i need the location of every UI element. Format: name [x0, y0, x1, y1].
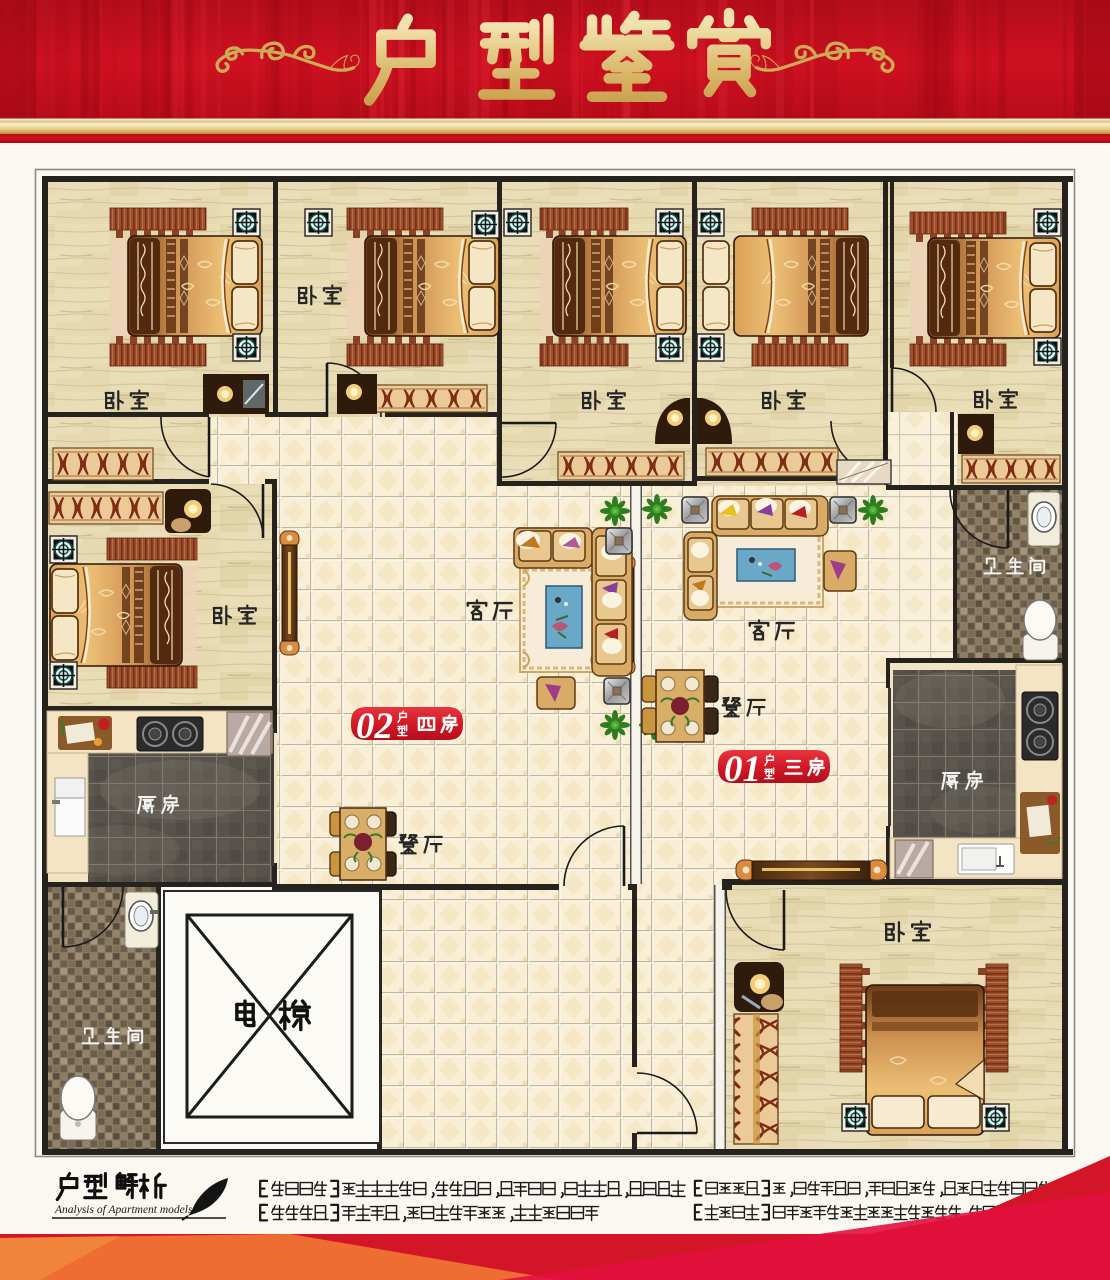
svg-text:01: 01 — [724, 749, 761, 790]
svg-text:Analysis of Apartment models: Analysis of Apartment models — [54, 1204, 193, 1216]
svg-text:02: 02 — [356, 706, 393, 747]
